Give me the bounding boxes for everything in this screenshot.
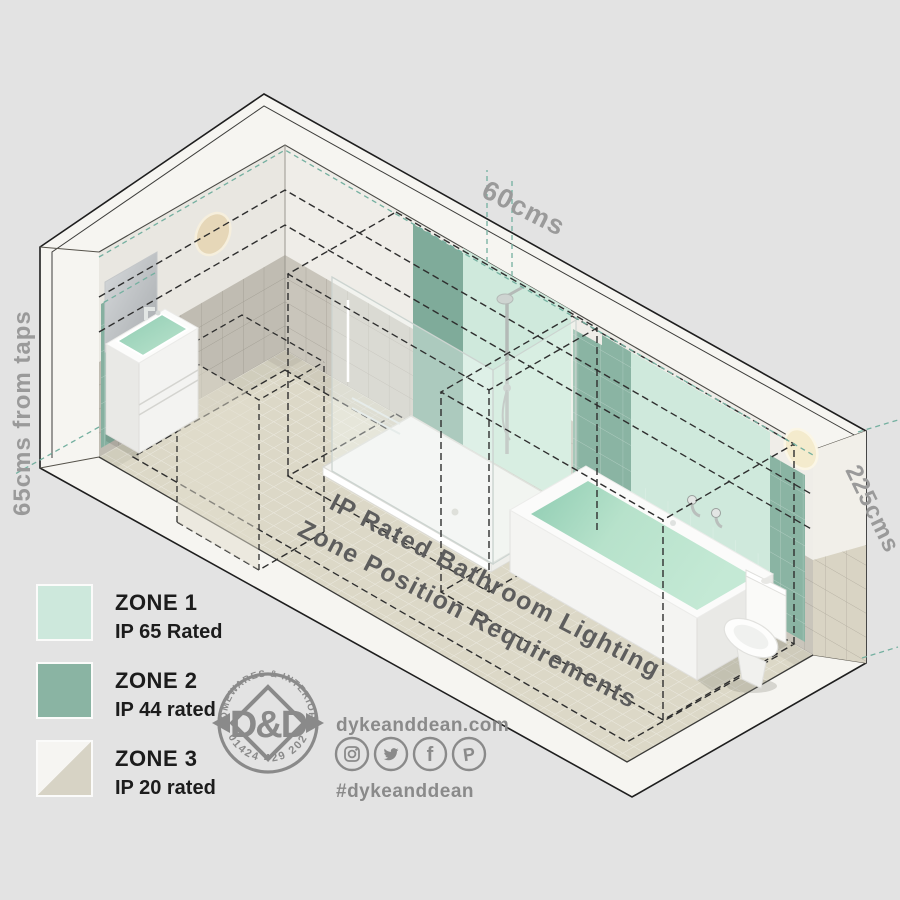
legend-item-zone2: ZONE 2 IP 44 rated	[36, 662, 222, 722]
zone2-swatch	[36, 662, 93, 719]
zone3-rating: IP 20 rated	[115, 777, 216, 800]
zone2-rating: IP 44 rated	[115, 699, 216, 722]
brand-social: dykeanddean.com f P #dykeanddean	[336, 715, 509, 802]
zone1-label: ZONE 1	[115, 590, 222, 616]
hashtag-text: #dykeanddean	[336, 781, 474, 802]
pinterest-icon: P	[453, 738, 485, 770]
poster: 60cms 65cms from taps 225cms IP Rated Ba…	[0, 0, 900, 900]
zone3-label: ZONE 3	[115, 746, 216, 772]
zone2-label: ZONE 2	[115, 668, 216, 694]
facebook-icon: f	[414, 738, 446, 770]
legend-item-zone3: ZONE 3 IP 20 rated	[36, 740, 222, 800]
twitter-icon	[375, 738, 407, 770]
svg-text:f: f	[427, 744, 434, 766]
zone1-swatch	[36, 584, 93, 641]
website-text: dykeanddean.com	[336, 715, 509, 736]
brand-logo: HOMEWARES & INTERIORS 01424 429 202 D&D	[212, 669, 324, 772]
measurement-left: 65cms from taps	[9, 310, 36, 516]
zone-legend: ZONE 1 IP 65 Rated ZONE 2 IP 44 rated ZO…	[36, 584, 222, 818]
logo-monogram: D&D	[230, 704, 307, 746]
zone3-swatch	[36, 740, 93, 797]
instagram-icon	[336, 738, 368, 770]
legend-item-zone1: ZONE 1 IP 65 Rated	[36, 584, 222, 644]
svg-text:P: P	[462, 744, 477, 765]
zone1-rating: IP 65 Rated	[115, 621, 222, 644]
